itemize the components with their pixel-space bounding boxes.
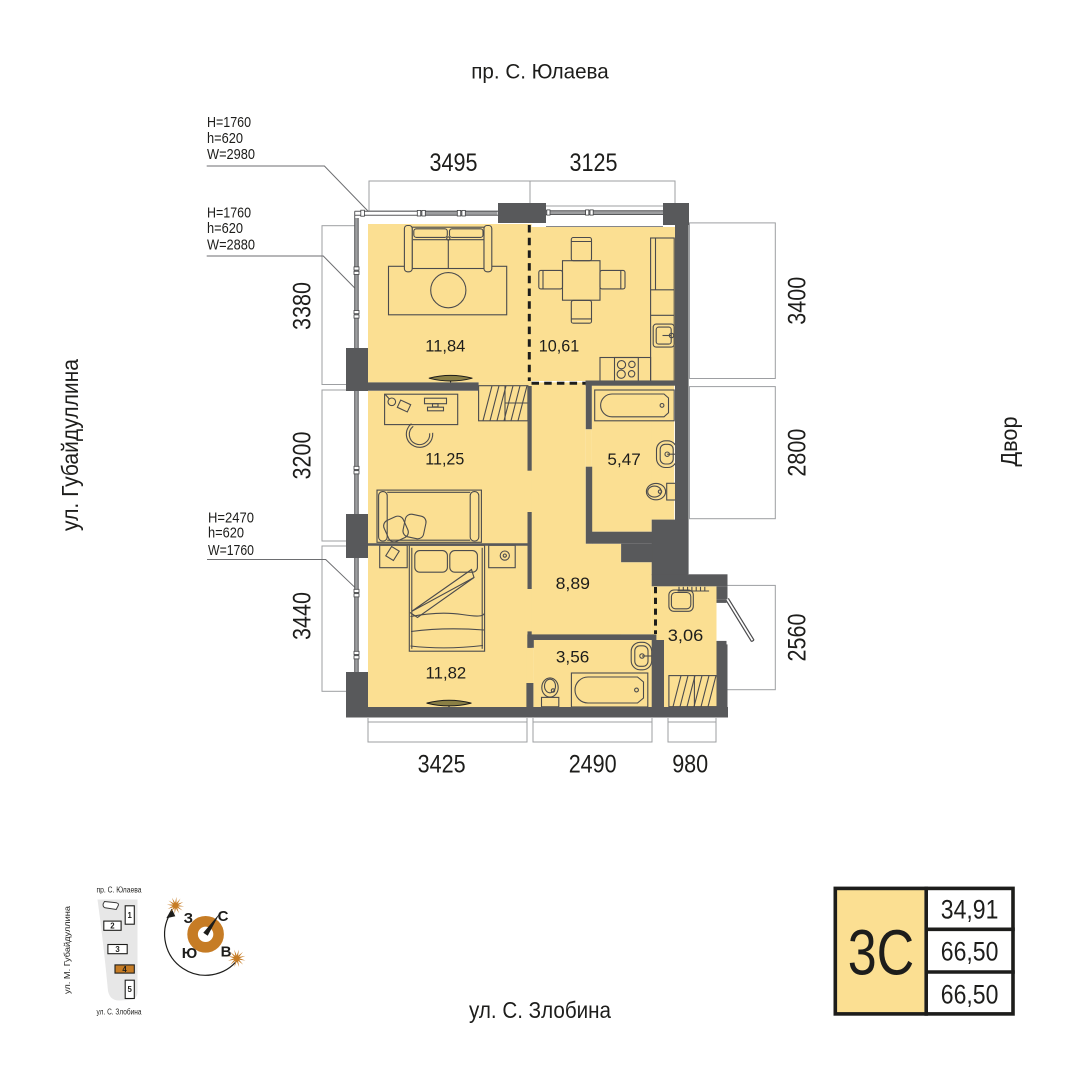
svg-text:2560: 2560	[784, 614, 812, 662]
svg-text:Ю: Ю	[182, 945, 197, 962]
svg-text:3125: 3125	[570, 149, 618, 177]
svg-text:пр. С. Юлаева: пр. С. Юлаева	[471, 60, 609, 84]
svg-text:3440: 3440	[289, 592, 317, 640]
svg-text:980: 980	[672, 750, 708, 778]
svg-text:H=1760: H=1760	[207, 205, 251, 222]
svg-text:3495: 3495	[430, 149, 478, 177]
svg-text:h=620: h=620	[207, 130, 243, 147]
svg-text:5: 5	[128, 985, 133, 994]
svg-text:ул. Губайдуллина: ул. Губайдуллина	[57, 359, 83, 531]
svg-text:4: 4	[122, 965, 127, 974]
svg-text:3200: 3200	[289, 432, 317, 480]
svg-text:10,61: 10,61	[539, 336, 580, 355]
svg-text:h=620: h=620	[208, 524, 244, 541]
svg-text:W=1760: W=1760	[208, 542, 254, 559]
svg-text:3С: 3С	[848, 917, 915, 989]
svg-text:8,89: 8,89	[556, 574, 590, 593]
svg-text:1: 1	[128, 911, 133, 920]
svg-text:пр. С. Юлаева: пр. С. Юлаева	[97, 885, 142, 895]
svg-text:34,91: 34,91	[941, 894, 999, 924]
svg-text:h=620: h=620	[207, 220, 243, 237]
svg-text:W=2980: W=2980	[207, 146, 255, 163]
svg-text:2: 2	[110, 922, 115, 931]
svg-text:3380: 3380	[289, 282, 317, 330]
svg-text:ул. С. Злобина: ул. С. Злобина	[469, 997, 611, 1023]
svg-text:W=2880: W=2880	[207, 237, 255, 254]
svg-text:ул. М. Губайдуллина: ул. М. Губайдуллина	[62, 906, 72, 994]
svg-text:В: В	[221, 944, 232, 961]
svg-text:5,47: 5,47	[607, 450, 640, 469]
svg-text:3,56: 3,56	[556, 648, 589, 667]
svg-text:2490: 2490	[569, 750, 617, 778]
svg-text:66,50: 66,50	[941, 936, 999, 966]
svg-text:66,50: 66,50	[941, 980, 999, 1010]
svg-text:3425: 3425	[418, 750, 466, 778]
svg-text:11,82: 11,82	[426, 664, 467, 683]
svg-text:ул. С. Злобина: ул. С. Злобина	[97, 1007, 142, 1017]
svg-text:11,84: 11,84	[425, 337, 465, 356]
svg-text:H=1760: H=1760	[207, 114, 251, 131]
svg-text:Двор: Двор	[996, 417, 1022, 467]
svg-text:3: 3	[115, 945, 120, 954]
svg-text:З: З	[184, 910, 193, 927]
svg-text:2800: 2800	[784, 429, 812, 477]
svg-text:3,06: 3,06	[668, 626, 704, 645]
svg-text:3400: 3400	[784, 277, 812, 325]
svg-text:С: С	[218, 908, 229, 925]
svg-text:11,25: 11,25	[425, 450, 464, 469]
